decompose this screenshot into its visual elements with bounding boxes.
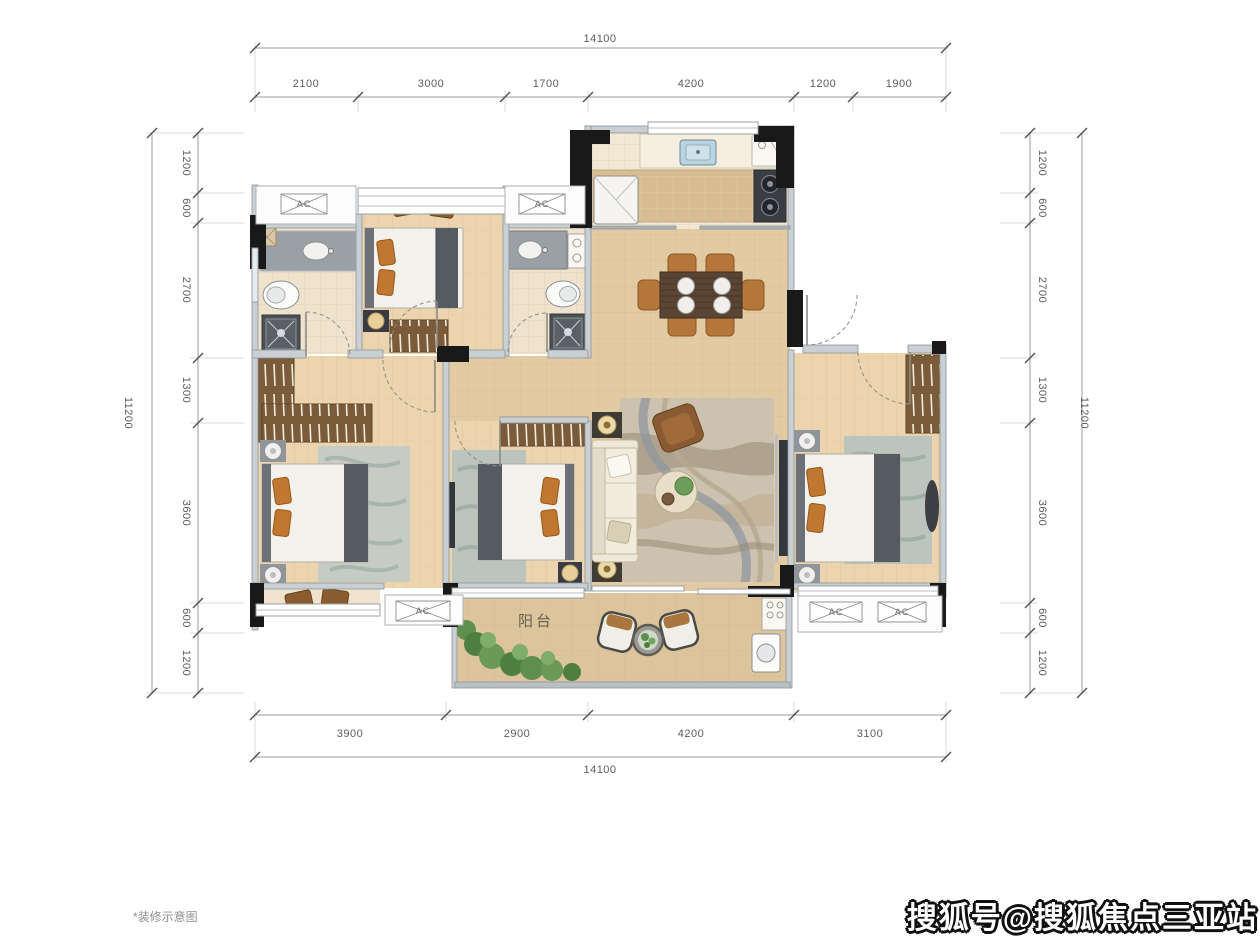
dim-left-seg: 3600 <box>180 489 192 537</box>
dim-bottom-seg: 4200 <box>667 728 715 740</box>
dim-right-seg: 600 <box>1036 184 1048 232</box>
dim-bottom-seg: 3100 <box>846 728 894 740</box>
dim-left-total: 11200 <box>122 389 134 437</box>
dim-left-seg: 2700 <box>180 266 192 314</box>
dim-bottom-seg: 2900 <box>493 728 541 740</box>
dim-bottom-total: 14100 <box>576 764 624 776</box>
balcony-sink <box>762 598 788 630</box>
dim-right-seg: 600 <box>1036 594 1048 642</box>
tv <box>779 440 788 556</box>
sliding-door <box>592 586 684 591</box>
ac-unit-label: AC <box>882 607 922 617</box>
dim-top-seg: 3000 <box>407 78 455 90</box>
decoration-note: *装修示意图 <box>133 908 198 925</box>
dim-left-seg: 1200 <box>180 639 192 687</box>
dim-left-seg: 600 <box>180 184 192 232</box>
ac-unit-label: AC <box>403 606 443 616</box>
dim-right-seg: 3600 <box>1036 489 1048 537</box>
living-room <box>592 392 795 588</box>
dim-top-total: 14100 <box>576 33 624 45</box>
ac-unit-label: AC <box>284 199 324 209</box>
balcony-chair <box>658 608 700 651</box>
dim-right-seg: 1200 <box>1036 139 1048 187</box>
dim-left-seg: 600 <box>180 594 192 642</box>
dim-top-seg: 1900 <box>875 78 923 90</box>
dim-right-total: 11200 <box>1078 389 1090 437</box>
dim-top-seg: 1200 <box>799 78 847 90</box>
dim-top-seg: 2100 <box>282 78 330 90</box>
dim-right-seg: 1300 <box>1036 366 1048 414</box>
balcony-chair <box>596 610 638 653</box>
bench <box>925 480 939 532</box>
window <box>358 188 505 214</box>
dim-right-seg: 1200 <box>1036 639 1048 687</box>
floor-plan-page: 14100 2100 3000 1700 4200 1200 1900 3900… <box>0 0 1260 942</box>
window <box>252 248 258 302</box>
sofa <box>592 440 638 562</box>
ac-unit-label: AC <box>522 199 562 209</box>
balcony-label: 阳台 <box>518 610 554 631</box>
dining-table <box>660 272 742 318</box>
watermark: 搜狐号@搜狐焦点三亚站 <box>907 893 1258 937</box>
ac-unit-label: AC <box>816 607 856 617</box>
dim-left-seg: 1200 <box>180 139 192 187</box>
dim-top-seg: 1700 <box>522 78 570 90</box>
dim-right-seg: 2700 <box>1036 266 1048 314</box>
dim-top-seg: 4200 <box>667 78 715 90</box>
sliding-door <box>698 589 790 594</box>
dim-bottom-seg: 3900 <box>326 728 374 740</box>
dim-left-seg: 1300 <box>180 366 192 414</box>
